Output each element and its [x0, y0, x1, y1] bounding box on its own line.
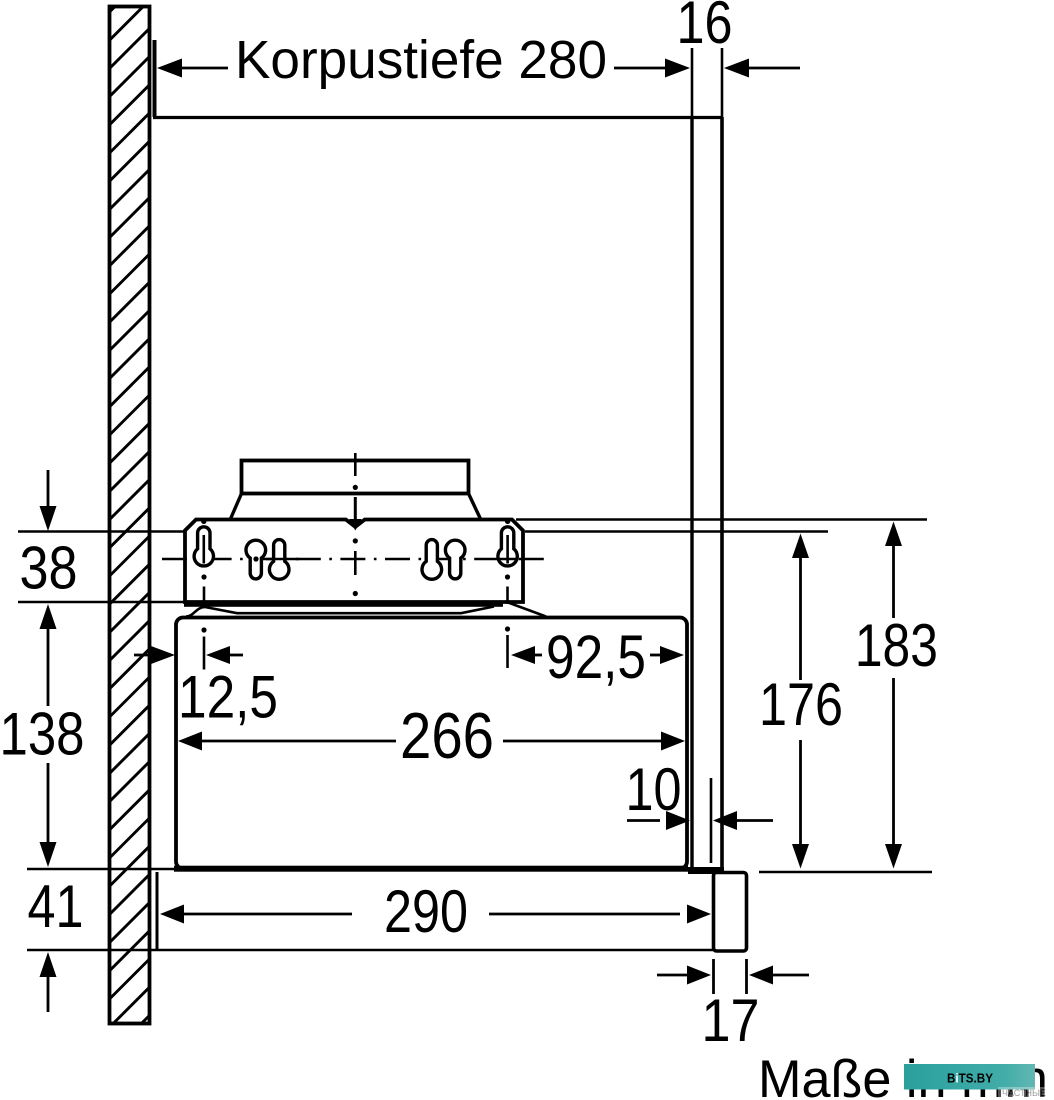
svg-text:138: 138 [0, 701, 85, 768]
svg-text:176: 176 [759, 671, 843, 738]
svg-text:41: 41 [28, 873, 84, 940]
svg-text:Korpustiefe 280: Korpustiefe 280 [235, 30, 607, 90]
svg-text:12,5: 12,5 [178, 664, 278, 731]
svg-text:10: 10 [626, 756, 682, 823]
svg-text:38: 38 [20, 535, 78, 602]
svg-text:16: 16 [677, 0, 733, 56]
svg-text:ЧАСТНЫЕ: ЧАСТНЫЕ [1002, 1088, 1046, 1098]
svg-text:BiTS.BY: BiTS.BY [947, 1071, 993, 1086]
svg-text:266: 266 [400, 699, 494, 772]
svg-text:17: 17 [702, 987, 760, 1054]
svg-text:290: 290 [384, 878, 468, 945]
svg-text:183: 183 [855, 612, 938, 679]
svg-text:92,5: 92,5 [546, 623, 646, 691]
